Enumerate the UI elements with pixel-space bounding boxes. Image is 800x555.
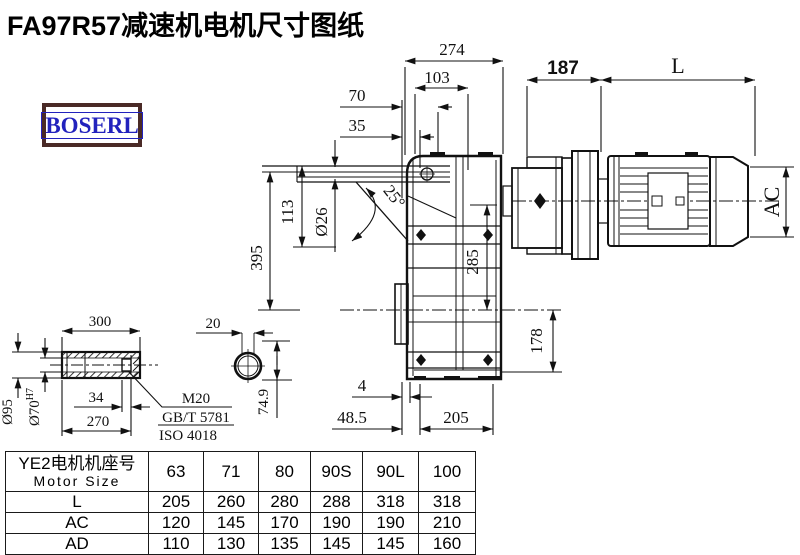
size-col-63: 63 [149,452,204,492]
dim-274: 274 [439,40,465,59]
cell-AC-90s: 190 [311,513,363,534]
cell-L-80: 280 [259,492,311,513]
pin-end-view [231,333,265,383]
size-col-71: 71 [204,452,259,492]
dim-20: 20 [206,316,221,332]
cell-AD-90l: 145 [363,534,419,555]
cell-AD-71: 130 [204,534,259,555]
dim-26: Ø26 [312,207,331,236]
table-row-AC: AC 120 145 170 190 190 210 [6,513,476,534]
size-col-90l: 90L [363,452,419,492]
header-cn: YE2电机机座号 [6,454,148,473]
dim-205: 205 [443,408,469,427]
cell-AD-63: 110 [149,534,204,555]
dim-74-9: 74.9 [256,389,272,415]
dim-270: 270 [87,414,110,430]
row-label-L: L [6,492,149,513]
cell-L-63: 205 [149,492,204,513]
cell-AC-100: 210 [419,513,476,534]
cell-AD-90s: 145 [311,534,363,555]
dim-395: 395 [247,245,266,271]
cell-AC-63: 120 [149,513,204,534]
cell-L-100: 318 [419,492,476,513]
table-row-AD: AD 110 130 135 145 145 160 [6,534,476,555]
cell-L-90s: 288 [311,492,363,513]
motor-size-table: YE2电机机座号 Motor Size 63 71 80 90S 90L 100… [5,451,476,555]
dim-178: 178 [527,328,546,354]
cell-AC-80: 170 [259,513,311,534]
label-m20: M20 [182,391,210,407]
label-iso4018: ISO 4018 [159,428,217,444]
table-row-L: L 205 260 280 288 318 318 [6,492,476,513]
dim-35: 35 [349,116,366,135]
dim-L: L [671,53,684,78]
dim-187: 187 [547,58,579,79]
dim-300: 300 [89,314,112,330]
dimension-labels: 274 103 70 35 187 L AC 395 113 Ø26 25° 2… [0,40,784,444]
dim-4: 4 [358,376,367,395]
size-col-80: 80 [259,452,311,492]
cell-AD-80: 135 [259,534,311,555]
shaft-detail-view [50,352,158,378]
dim-285: 285 [463,249,482,275]
cell-AC-71: 145 [204,513,259,534]
drawing-page: FA97R57减速机电机尺寸图纸 BOSERL [0,0,800,555]
dimension-lines [12,61,794,436]
dim-113: 113 [278,200,297,225]
cell-AD-100: 160 [419,534,476,555]
dim-103: 103 [424,68,450,87]
dim-25deg: 25° [380,181,410,211]
dim-34: 34 [89,390,105,406]
motor-side-view [503,151,782,259]
table-header-row: YE2电机机座号 Motor Size 63 71 80 90S 90L 100 [6,452,476,492]
dim-48-5: 48.5 [337,408,367,427]
dim-70h7: Ø70H7 [25,388,43,426]
motor-nameplate [648,173,688,229]
cell-L-90l: 318 [363,492,419,513]
dim-95: Ø95 [0,399,16,425]
header-motor-size: YE2电机机座号 Motor Size [6,452,149,492]
row-label-AD: AD [6,534,149,555]
label-gbt5781: GB/T 5781 [162,410,230,426]
size-col-90s: 90S [311,452,363,492]
cell-L-71: 260 [204,492,259,513]
header-en: Motor Size [6,473,148,490]
size-col-100: 100 [419,452,476,492]
cell-AC-90l: 190 [363,513,419,534]
dim-AC: AC [759,187,784,218]
row-label-AC: AC [6,513,149,534]
dim-70: 70 [349,86,366,105]
